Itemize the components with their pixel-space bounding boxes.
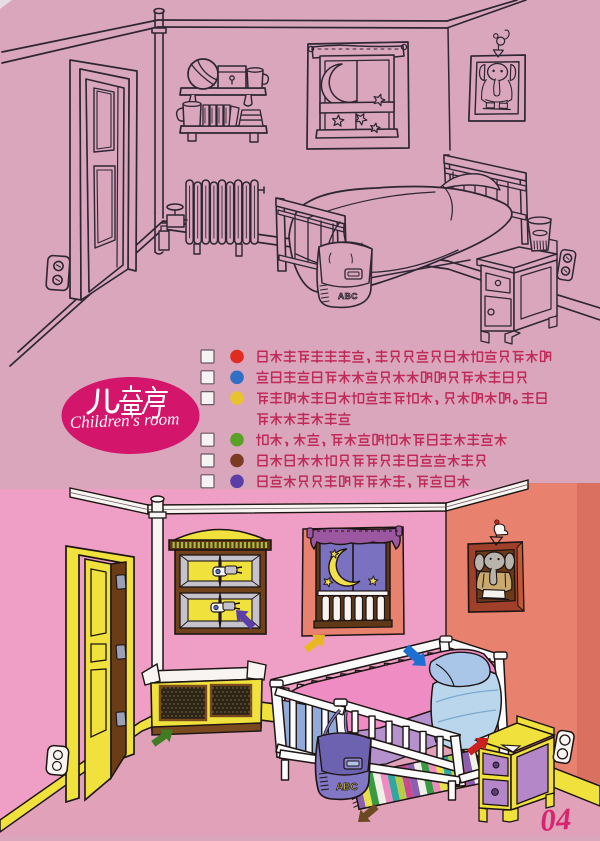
svg-text:ABC: ABC: [336, 782, 358, 793]
svg-text:04: 04: [539, 801, 572, 836]
svg-text:ABC: ABC: [338, 291, 358, 301]
svg-text:Children's room: Children's room: [69, 409, 179, 432]
